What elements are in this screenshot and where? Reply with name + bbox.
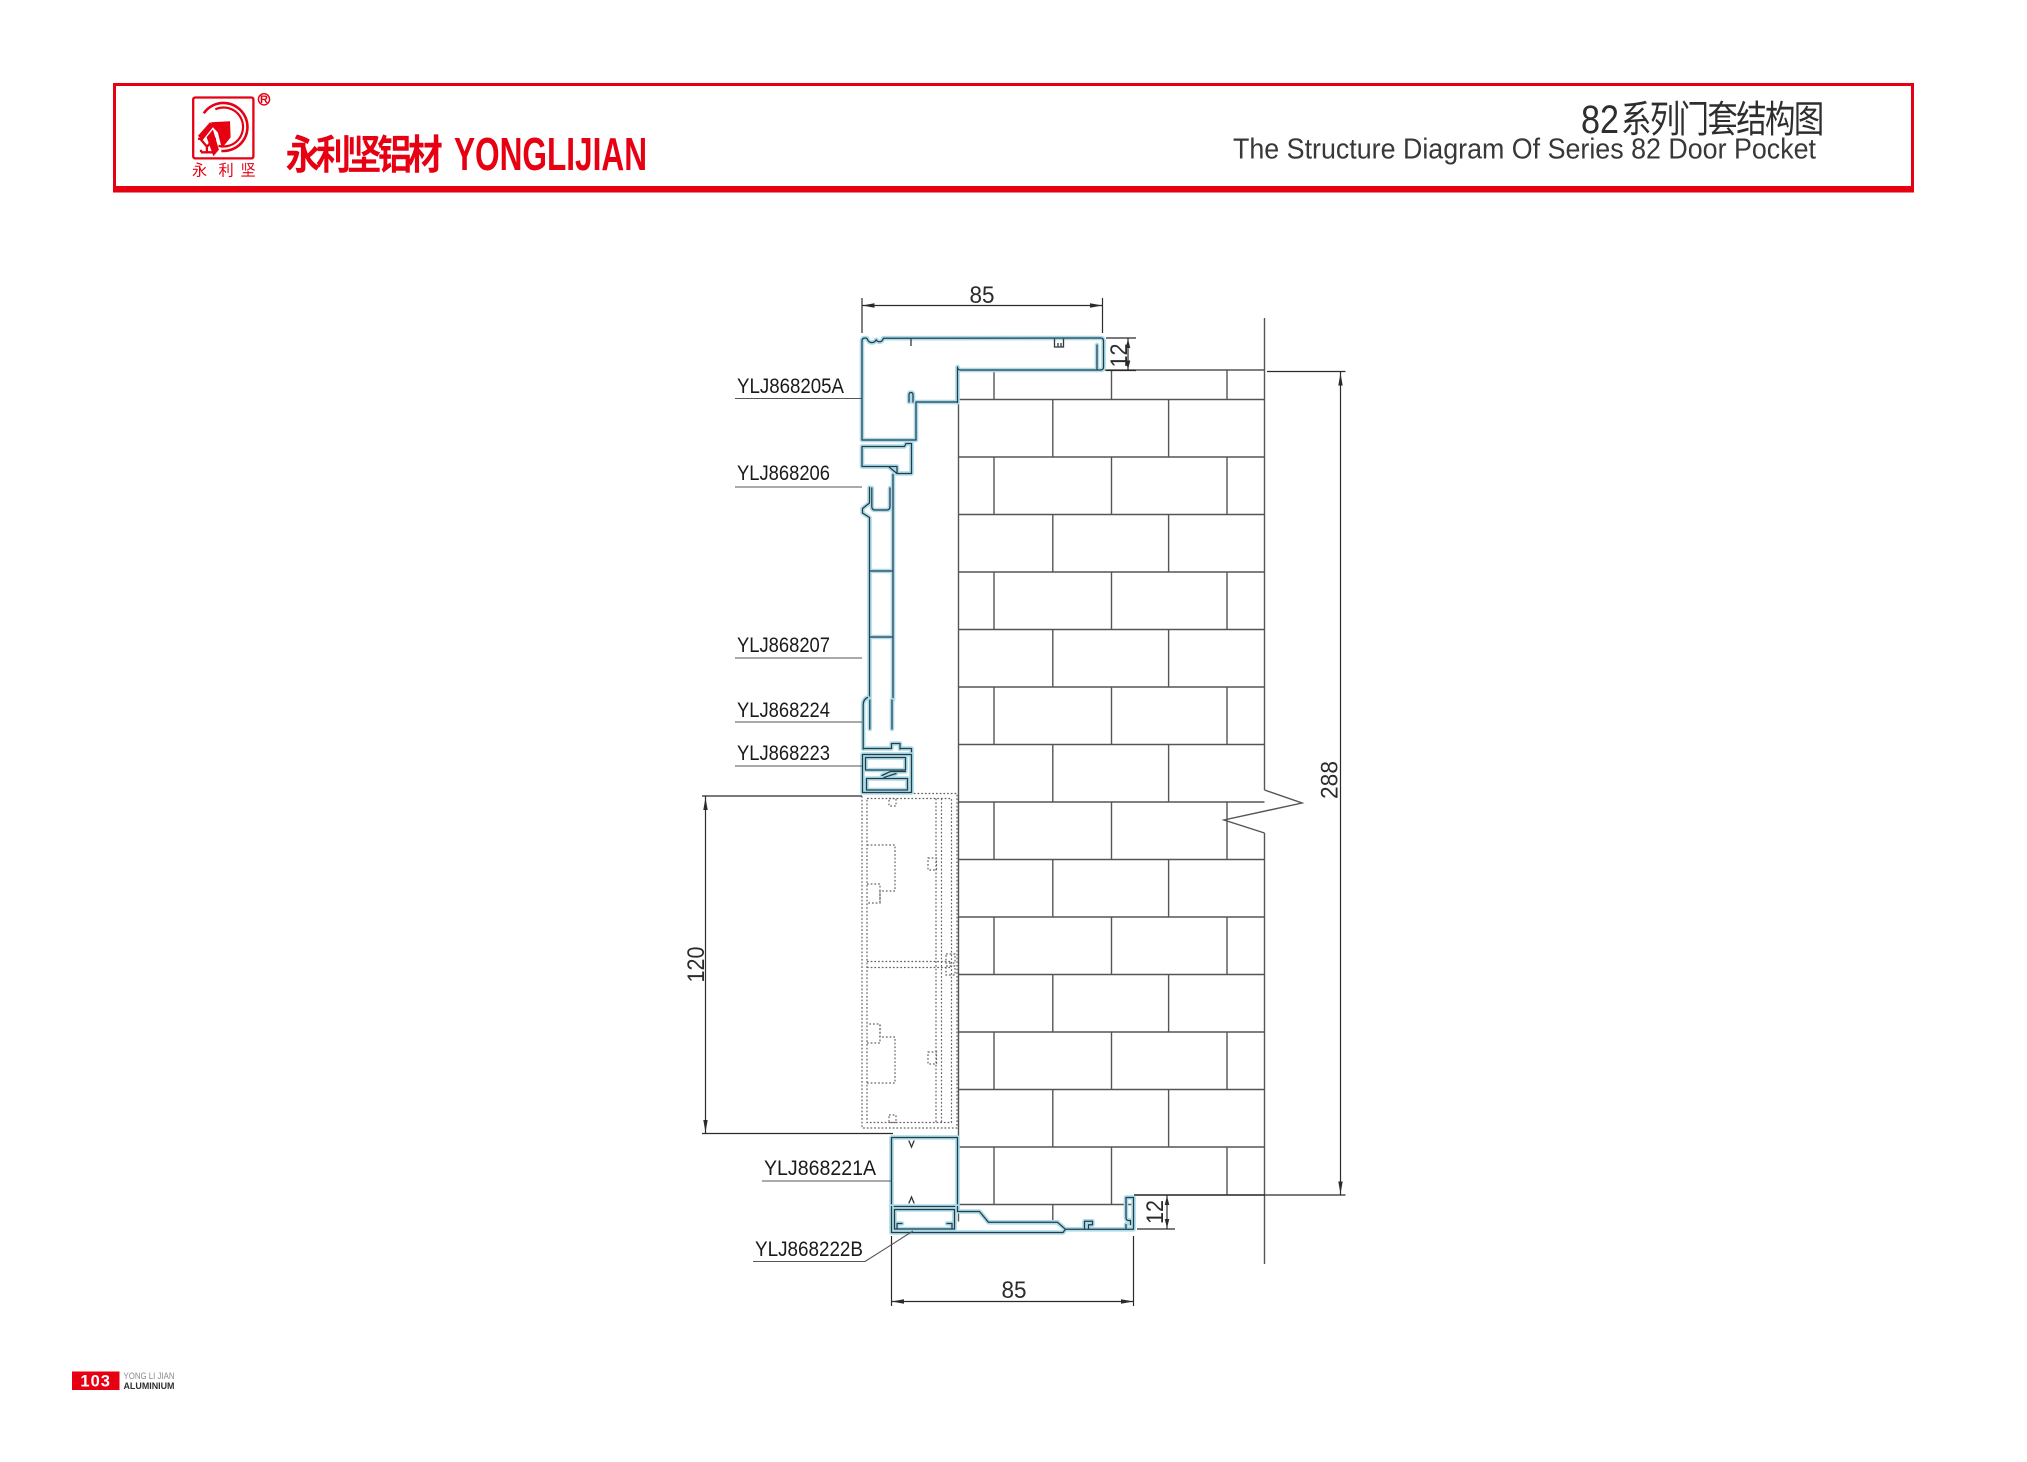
svg-text:85: 85 [970, 282, 995, 309]
svg-text:12: 12 [1142, 1200, 1169, 1224]
svg-text:85: 85 [1002, 1277, 1027, 1304]
svg-text:12: 12 [1106, 344, 1133, 368]
svg-text:YLJ868207: YLJ868207 [737, 634, 830, 657]
svg-text:YLJ868222B: YLJ868222B [755, 1238, 863, 1261]
svg-text:YLJ868206: YLJ868206 [737, 462, 830, 485]
svg-text:YONGLIJIAN: YONGLIJIAN [454, 128, 647, 180]
svg-text:103: 103 [80, 1373, 111, 1391]
svg-text:The Structure Diagram Of Serie: The Structure Diagram Of Series 82 Door … [1233, 134, 1816, 166]
svg-text:R: R [260, 94, 268, 106]
svg-text:ALUMINIUM: ALUMINIUM [124, 1381, 175, 1391]
svg-text:YONG LI JIAN: YONG LI JIAN [124, 1371, 175, 1381]
svg-text:YLJ868223: YLJ868223 [737, 742, 830, 765]
svg-text:YLJ868224: YLJ868224 [737, 699, 830, 722]
svg-text:120: 120 [683, 947, 710, 983]
svg-text:288: 288 [1317, 761, 1344, 799]
svg-text:YLJ868221A: YLJ868221A [764, 1157, 876, 1180]
svg-text:YLJ868205A: YLJ868205A [737, 375, 844, 398]
